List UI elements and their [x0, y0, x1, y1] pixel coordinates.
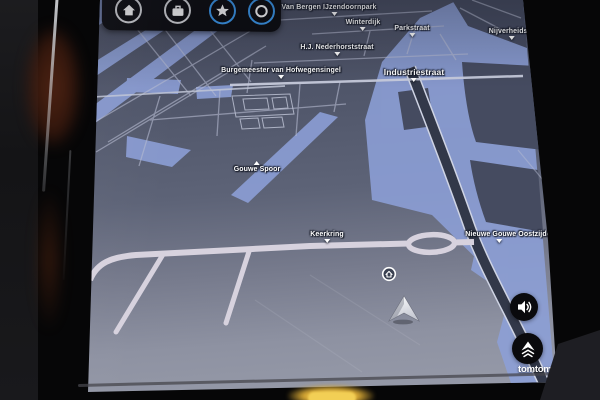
major-roads [90, 234, 474, 332]
map-geometry [0, 0, 600, 400]
tomtom-arrow-icon [518, 339, 538, 359]
work-button[interactable] [164, 0, 191, 24]
volume-button[interactable] [510, 293, 538, 321]
home-button[interactable] [115, 0, 142, 23]
navigation-map[interactable]: Van Bergen IJzendoornpark Winterdijk Par… [0, 0, 600, 400]
quick-access-toolbar [102, 0, 281, 32]
briefcase-icon [170, 3, 184, 17]
touchscreen: Van Bergen IJzendoornpark Winterdijk Par… [0, 0, 600, 400]
ring-icon [254, 4, 269, 19]
interior-reflection [34, 190, 64, 330]
faint-streets [255, 275, 420, 372]
car-infotainment-photo: Van Bergen IJzendoornpark Winterdijk Par… [0, 0, 600, 400]
building-outlines [232, 94, 294, 129]
dashboard-glow [308, 392, 356, 400]
expand-button[interactable] [512, 333, 543, 364]
star-icon [215, 3, 230, 18]
bezel-edge-highlight [63, 150, 72, 280]
home-icon [121, 3, 135, 17]
speaker-icon [515, 298, 533, 316]
favorites-button[interactable] [209, 0, 236, 24]
recent-button[interactable] [248, 0, 275, 25]
